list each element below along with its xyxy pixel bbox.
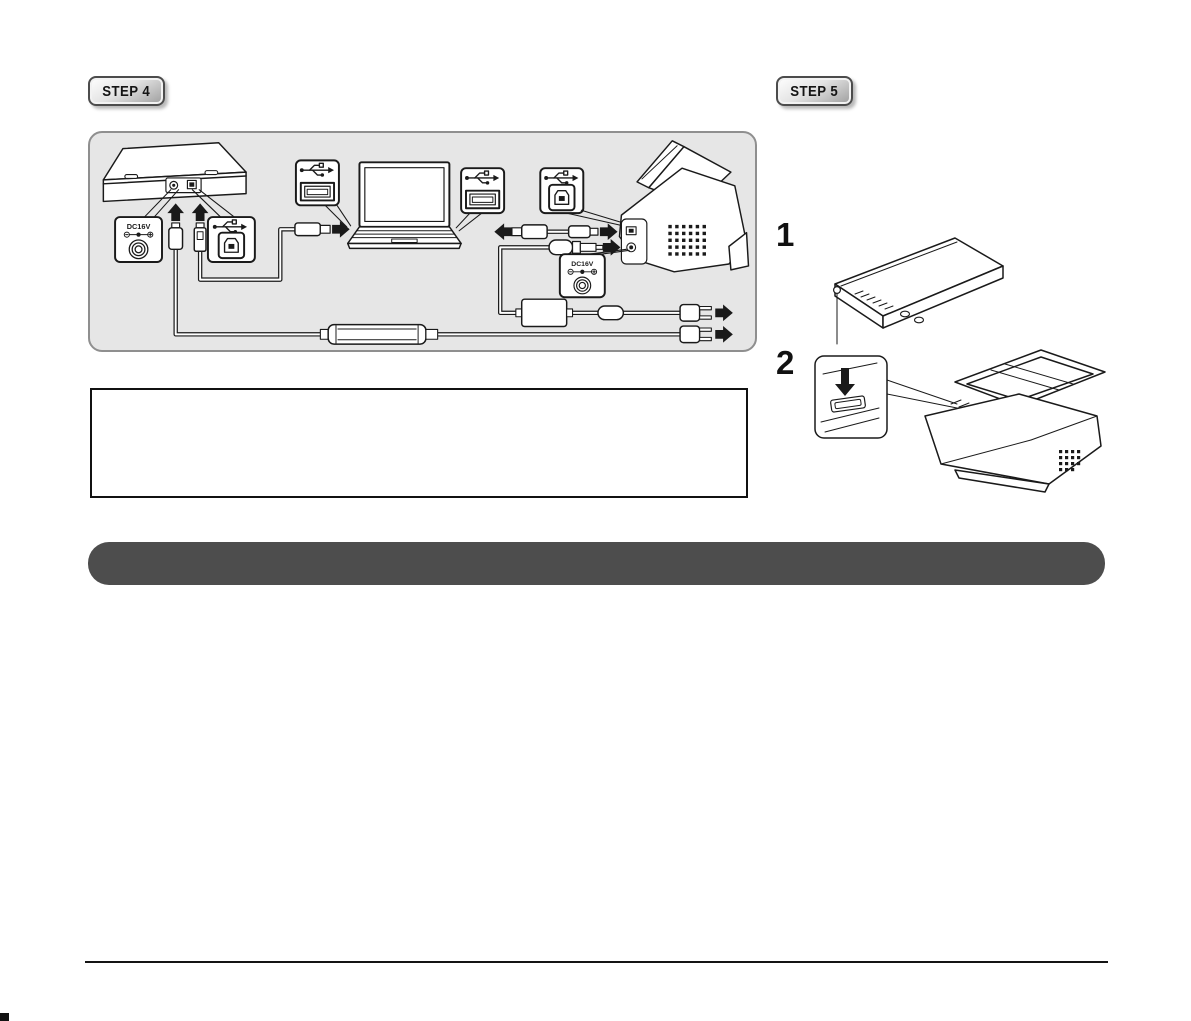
document-scanner-front xyxy=(925,350,1105,492)
right-arrow-icon xyxy=(600,223,618,240)
usb-plug-into-laptop-left xyxy=(295,221,350,238)
power-plug-up xyxy=(167,203,184,249)
usb-b-port-icon xyxy=(549,185,574,210)
usb-callout-laptop-right xyxy=(456,168,504,231)
power-plug-icon xyxy=(680,305,711,322)
step5-badge: STEP 5 xyxy=(776,76,853,106)
page-corner-artifact xyxy=(0,1013,9,1021)
right-arrow-icon xyxy=(332,221,350,238)
callout-line xyxy=(887,394,957,408)
usb-port-rear xyxy=(187,180,196,188)
usb-callout-flatbed xyxy=(208,217,255,262)
document-scanner-side xyxy=(619,141,748,272)
dc16v-callout-right: DC16V xyxy=(560,249,629,297)
dc16v-callout-left: DC16V xyxy=(115,217,162,262)
dc16v-left-label: DC16V xyxy=(127,222,151,231)
dc16v-right-label: DC16V xyxy=(571,261,593,268)
step2-document-scanner-illustration xyxy=(805,342,1125,502)
connector-panel xyxy=(621,219,646,264)
usb-plug-up xyxy=(192,203,209,251)
usb-a-port-icon xyxy=(466,191,499,209)
power-plug-icon xyxy=(680,326,711,343)
step5-badge-label: STEP 5 xyxy=(791,83,839,100)
power-button xyxy=(834,287,841,294)
usb-callout-laptop-left xyxy=(296,160,351,226)
callout-line xyxy=(887,380,957,404)
step1-number: 1 xyxy=(776,218,794,251)
right-arrow-icon xyxy=(715,305,733,322)
scan-button xyxy=(901,311,910,317)
usb-b-port-icon xyxy=(219,233,244,258)
usb-a-port-icon xyxy=(301,183,334,201)
footer-rule xyxy=(85,961,1108,963)
step1-flatbed-scanner-illustration xyxy=(805,222,1015,348)
left-arrow-icon xyxy=(494,223,512,240)
connection-diagram-panel: DC16V xyxy=(88,131,757,352)
power-jack-rear xyxy=(170,181,178,189)
note-box xyxy=(90,388,748,498)
usb-callout-doc-scanner xyxy=(540,168,626,226)
up-arrow-icon xyxy=(167,203,184,221)
connection-diagram: DC16V xyxy=(90,133,755,350)
scan-button xyxy=(915,317,924,323)
step4-badge-label: STEP 4 xyxy=(103,83,151,100)
right-arrow-icon xyxy=(715,326,733,343)
ferrite-bead xyxy=(598,306,623,320)
step2-number: 2 xyxy=(776,346,794,379)
section-header-bar xyxy=(88,542,1105,585)
laptop xyxy=(348,162,461,248)
step4-badge: STEP 4 xyxy=(88,76,165,106)
up-arrow-icon xyxy=(192,203,209,221)
flatbed-scanner-perspective xyxy=(834,238,1003,344)
usb-port-scanner xyxy=(626,227,636,235)
